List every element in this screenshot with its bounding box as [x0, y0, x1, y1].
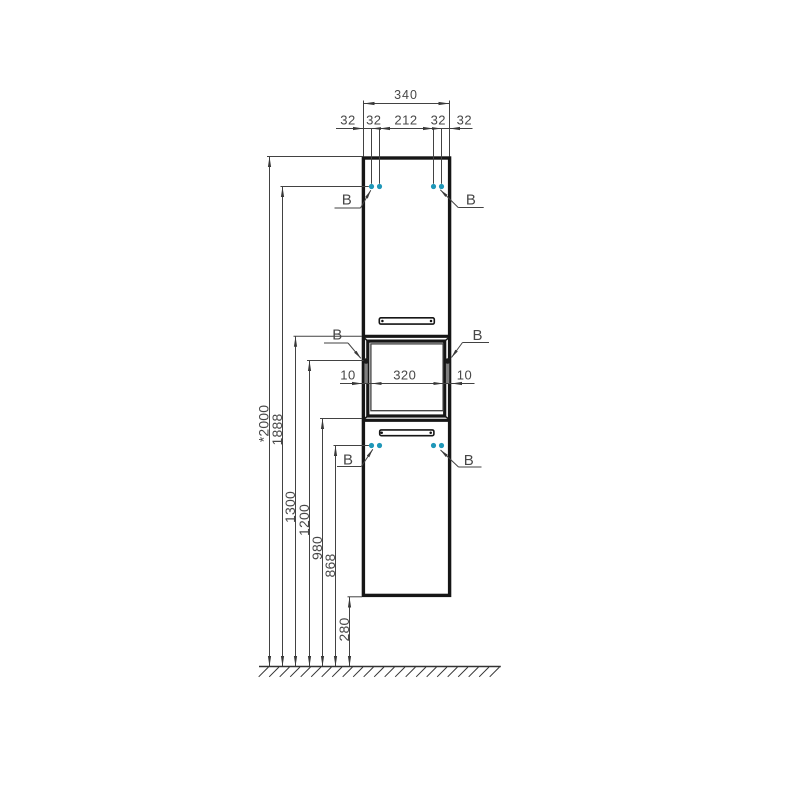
svg-text:B: B — [464, 452, 474, 469]
svg-text:32: 32 — [366, 113, 381, 128]
svg-text:32: 32 — [431, 113, 446, 128]
svg-text:212: 212 — [394, 113, 417, 128]
svg-text:B: B — [466, 191, 476, 208]
svg-text:B: B — [472, 327, 482, 344]
svg-text:32: 32 — [457, 113, 472, 128]
svg-text:B: B — [343, 452, 353, 469]
svg-text:340: 340 — [394, 88, 418, 102]
svg-text:32: 32 — [340, 113, 355, 128]
svg-text:1200: 1200 — [296, 504, 312, 536]
svg-text:868: 868 — [322, 554, 338, 578]
svg-text:280: 280 — [336, 618, 352, 642]
svg-text:1888: 1888 — [269, 414, 285, 446]
svg-text:10: 10 — [457, 367, 472, 382]
svg-text:B: B — [342, 192, 352, 209]
svg-text:10: 10 — [340, 367, 355, 382]
svg-text:B: B — [332, 327, 342, 344]
svg-text:320: 320 — [393, 367, 416, 382]
